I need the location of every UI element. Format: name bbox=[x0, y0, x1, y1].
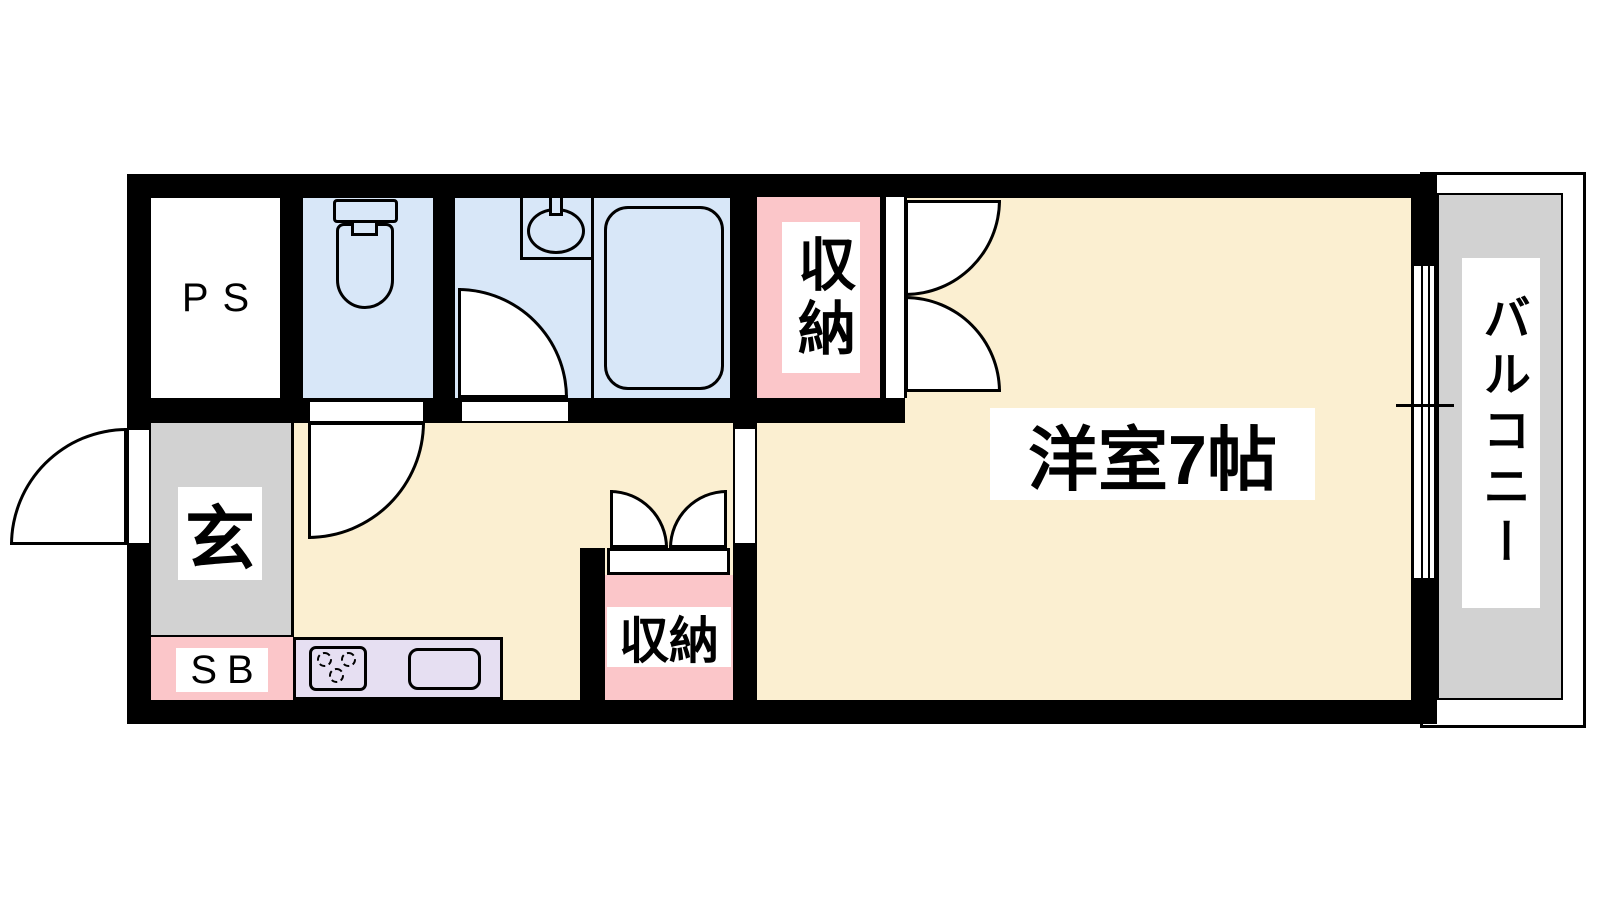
stove-icon bbox=[309, 646, 367, 691]
entrance-label-box: 玄 bbox=[178, 487, 262, 580]
bathroom-door-opening bbox=[460, 400, 570, 423]
entrance-label: 玄 bbox=[185, 483, 255, 584]
stove-burner-icon bbox=[341, 652, 356, 667]
kitchen-sink-icon bbox=[408, 648, 481, 690]
closet-upper-label-box: 収納 bbox=[782, 222, 860, 373]
toilet-door-opening bbox=[308, 400, 425, 423]
closet-upper-door-panel bbox=[883, 197, 907, 398]
toilet-icon bbox=[333, 199, 399, 311]
entry-door-opening bbox=[127, 428, 151, 545]
stove-burner-icon bbox=[317, 652, 332, 667]
window-pane-line bbox=[1428, 266, 1430, 578]
window-latch-mark bbox=[1396, 404, 1454, 407]
bathtub-icon bbox=[604, 206, 724, 390]
balcony-label: バルコニー bbox=[1466, 293, 1536, 573]
sliding-window bbox=[1411, 266, 1437, 578]
ps-room: PS bbox=[151, 198, 280, 398]
faucet-icon bbox=[549, 198, 563, 216]
entry-door-swing bbox=[10, 428, 127, 545]
stove-burner-icon bbox=[329, 668, 344, 683]
main-room-door-opening bbox=[733, 427, 757, 545]
closet-upper-label: 収納 bbox=[779, 234, 863, 362]
main-room-label: 洋室7帖 bbox=[1028, 404, 1277, 505]
balcony-label-box: バルコニー bbox=[1462, 258, 1540, 608]
floor-plan-canvas: PS 収納 洋室7帖 玄 SB bbox=[0, 0, 1600, 900]
shoe-box-label: SB bbox=[190, 648, 263, 693]
closet-lower-threshold bbox=[607, 548, 730, 575]
closet-lower-wall-left bbox=[580, 548, 605, 700]
shoe-box-label-box: SB bbox=[176, 648, 268, 692]
closet-lower-label-box: 収納 bbox=[607, 607, 731, 667]
toilet-tank bbox=[333, 199, 398, 223]
closet-lower-label: 収納 bbox=[619, 601, 719, 673]
window-pane-line bbox=[1421, 266, 1423, 578]
main-room-label-box: 洋室7帖 bbox=[990, 408, 1315, 500]
toilet-flush bbox=[351, 223, 378, 236]
ps-label: PS bbox=[182, 276, 263, 321]
